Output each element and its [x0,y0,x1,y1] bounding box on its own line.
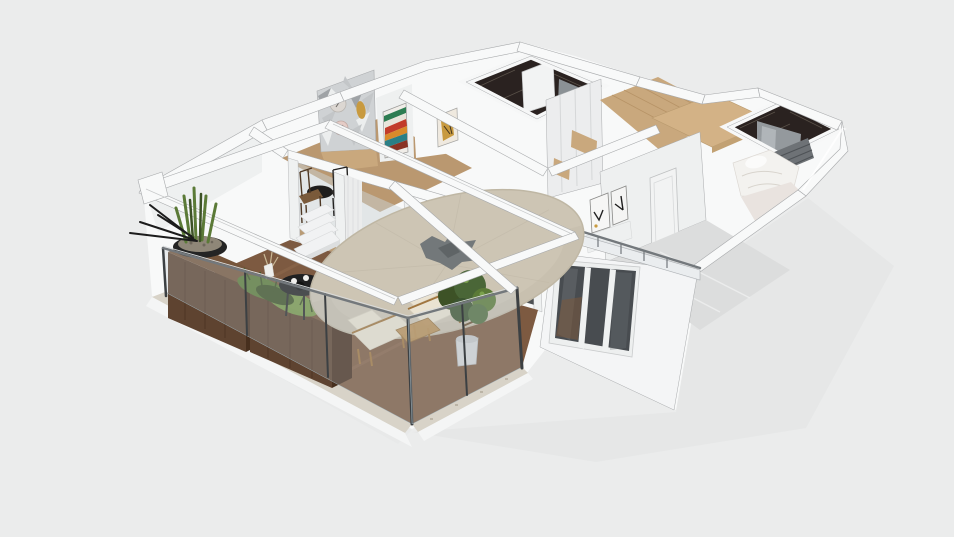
hallway-wardrobe [546,79,603,198]
3d-floorplan-viewport[interactable] [0,0,954,537]
exterior-wall [540,253,698,410]
floorplan-render [0,0,954,537]
